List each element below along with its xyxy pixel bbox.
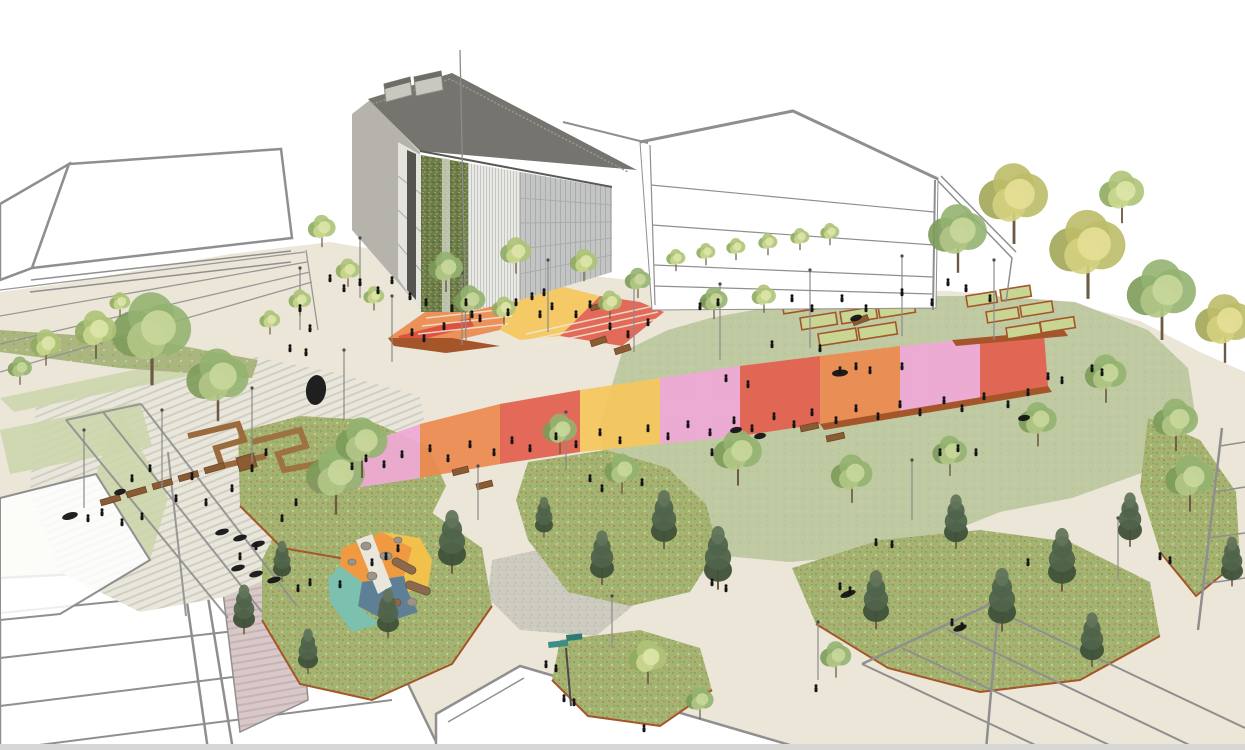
person: [943, 396, 946, 399]
person: [687, 420, 690, 423]
person: [299, 307, 302, 312]
person: [901, 362, 904, 365]
person: [751, 424, 754, 427]
boulder: [394, 537, 402, 543]
pine-tree-canopy: [1227, 536, 1238, 550]
person: [447, 457, 450, 462]
light-pole-head: [358, 236, 361, 239]
tower-stair-core: [407, 150, 416, 300]
person: [401, 453, 404, 458]
person: [899, 403, 902, 408]
person: [599, 428, 602, 431]
person: [771, 340, 774, 343]
person: [343, 284, 346, 287]
person: [309, 578, 312, 581]
person: [619, 439, 622, 444]
person: [793, 420, 796, 423]
person: [815, 684, 818, 687]
tree-canopy: [355, 429, 378, 452]
person: [101, 511, 104, 516]
light-pole-head: [816, 620, 819, 623]
person: [429, 444, 432, 447]
person: [841, 294, 844, 297]
pine-tree-canopy: [658, 490, 670, 507]
person: [965, 284, 968, 287]
tree-canopy: [441, 259, 456, 274]
person: [711, 581, 714, 586]
person: [359, 281, 362, 286]
person: [891, 543, 894, 548]
person: [359, 278, 362, 281]
person: [425, 298, 428, 301]
person: [529, 444, 532, 447]
person: [409, 295, 412, 300]
person: [589, 477, 592, 482]
person: [793, 423, 796, 428]
person: [423, 334, 426, 337]
tree-canopy: [607, 296, 618, 307]
person: [351, 462, 354, 465]
person: [589, 303, 592, 308]
person: [1027, 388, 1030, 391]
person: [601, 484, 604, 487]
tree-canopy: [17, 362, 28, 373]
person: [465, 298, 468, 301]
person: [377, 286, 380, 289]
person: [855, 362, 858, 365]
tree-canopy: [765, 237, 773, 245]
person: [733, 416, 736, 419]
person: [239, 555, 242, 560]
person: [875, 541, 878, 546]
person: [1091, 364, 1094, 367]
person: [983, 392, 986, 395]
person: [947, 278, 950, 281]
tree-canopy: [846, 464, 864, 482]
boulder: [361, 542, 371, 550]
person: [931, 298, 934, 301]
person: [877, 412, 880, 415]
person: [121, 518, 124, 521]
pine-tree-canopy: [1086, 612, 1098, 627]
person: [619, 436, 622, 439]
person: [309, 581, 312, 586]
person: [515, 298, 518, 301]
person: [539, 313, 542, 318]
person: [493, 451, 496, 456]
person: [281, 514, 284, 517]
light-pole-head: [82, 428, 85, 431]
person: [339, 583, 342, 588]
person: [575, 443, 578, 448]
person: [289, 347, 292, 352]
boulder: [407, 598, 417, 606]
tree-canopy: [703, 247, 711, 255]
person: [101, 508, 104, 511]
person: [975, 451, 978, 456]
person: [411, 331, 414, 336]
person: [507, 308, 510, 311]
person: [231, 484, 234, 487]
light-pole-head: [476, 464, 479, 467]
person: [555, 435, 558, 440]
person: [555, 664, 558, 667]
person: [1159, 555, 1162, 560]
person: [365, 454, 368, 457]
person: [627, 330, 630, 333]
pine-tree-canopy: [596, 530, 608, 545]
light-pole-head: [160, 408, 163, 411]
tree-canopy: [643, 649, 660, 666]
person: [385, 555, 388, 560]
person: [1047, 372, 1050, 375]
tree-canopy: [90, 320, 108, 338]
person: [131, 477, 134, 482]
person: [855, 365, 858, 370]
person: [1061, 376, 1064, 379]
person: [725, 377, 728, 382]
person: [725, 587, 728, 592]
person: [471, 310, 474, 313]
tree-canopy: [1183, 466, 1204, 487]
person: [647, 318, 650, 321]
tree-canopy: [1004, 179, 1034, 209]
person: [531, 292, 534, 295]
person: [943, 399, 946, 404]
person: [601, 487, 604, 492]
person: [643, 727, 646, 732]
person: [297, 587, 300, 592]
person: [791, 297, 794, 302]
person: [251, 464, 254, 467]
tree-canopy: [555, 421, 570, 436]
person: [747, 383, 750, 388]
person: [493, 448, 496, 451]
person: [869, 369, 872, 374]
person: [377, 289, 380, 294]
person: [839, 585, 842, 590]
person: [329, 277, 332, 282]
person: [687, 423, 690, 428]
person: [551, 305, 554, 310]
person: [507, 311, 510, 316]
light-pole-head: [342, 348, 345, 351]
tree-canopy: [42, 336, 56, 350]
tree-canopy: [950, 217, 976, 243]
person: [811, 408, 814, 411]
person: [717, 298, 720, 301]
person: [575, 313, 578, 318]
person: [573, 698, 576, 701]
person: [365, 457, 368, 462]
office-tower: [352, 71, 637, 312]
light-pole-head: [546, 258, 549, 261]
person: [747, 380, 750, 383]
person: [555, 667, 558, 672]
person: [641, 478, 644, 481]
person: [951, 618, 954, 621]
person: [667, 435, 670, 440]
tree-canopy: [673, 253, 681, 261]
person: [1101, 368, 1104, 371]
person: [819, 344, 822, 347]
person: [811, 307, 814, 312]
plaza-surface-patch: [820, 346, 900, 424]
person: [425, 301, 428, 306]
person: [411, 328, 414, 331]
person: [641, 481, 644, 486]
person: [869, 366, 872, 369]
tree-canopy: [1033, 411, 1050, 428]
tree-canopy: [512, 244, 526, 258]
person: [667, 432, 670, 435]
person: [149, 467, 152, 472]
person: [515, 301, 518, 306]
person: [951, 621, 954, 626]
tree-canopy: [267, 315, 276, 324]
pine-tree-canopy: [303, 629, 313, 642]
person: [383, 460, 386, 463]
person: [773, 412, 776, 415]
tree-canopy: [345, 264, 356, 275]
person: [175, 494, 178, 497]
pine-tree-canopy: [995, 568, 1008, 586]
person: [647, 424, 650, 427]
tree-canopy: [209, 363, 236, 390]
person: [447, 454, 450, 457]
person: [643, 724, 646, 727]
person: [1027, 558, 1030, 561]
pine-tree-canopy: [540, 497, 549, 509]
tree-canopy: [328, 459, 354, 485]
person: [1169, 556, 1172, 559]
person: [539, 310, 542, 313]
person: [811, 304, 814, 307]
person: [1047, 375, 1050, 380]
tree-canopy: [297, 294, 307, 304]
person: [877, 415, 880, 420]
tree-canopy: [1170, 409, 1190, 429]
person: [725, 584, 728, 587]
person: [901, 365, 904, 370]
person: [281, 517, 284, 522]
person: [545, 660, 548, 663]
person: [1159, 552, 1162, 555]
person: [545, 663, 548, 668]
person: [451, 307, 454, 312]
person: [231, 487, 234, 492]
person: [205, 498, 208, 501]
person: [891, 540, 894, 543]
person: [609, 325, 612, 330]
person: [975, 448, 978, 451]
person: [699, 305, 702, 310]
person: [771, 343, 774, 348]
person: [423, 337, 426, 342]
person: [865, 304, 868, 307]
person: [901, 288, 904, 291]
person: [371, 558, 374, 561]
tree-canopy: [580, 255, 592, 267]
person: [255, 545, 258, 550]
light-pole-head: [808, 268, 811, 271]
bottom-strip: [0, 744, 1245, 750]
person: [255, 542, 258, 545]
person: [511, 436, 514, 439]
person: [865, 307, 868, 312]
light-pole-head: [564, 410, 567, 413]
person: [429, 447, 432, 452]
person: [709, 431, 712, 436]
person: [295, 501, 298, 506]
person: [711, 451, 714, 456]
person: [835, 419, 838, 424]
pine-tree-canopy: [870, 570, 882, 587]
person: [239, 552, 242, 555]
person: [839, 369, 842, 374]
light-pole-head: [298, 266, 301, 269]
person: [149, 464, 152, 467]
rendering-canvas: [0, 0, 1245, 750]
person: [1007, 403, 1010, 408]
pine-tree-canopy: [445, 510, 458, 528]
person: [351, 465, 354, 470]
person: [939, 448, 942, 451]
person: [965, 287, 968, 292]
person: [397, 547, 400, 552]
person: [717, 301, 720, 306]
person: [961, 625, 964, 630]
person: [191, 472, 194, 475]
person: [87, 514, 90, 517]
person: [939, 451, 942, 456]
person: [343, 287, 346, 292]
person: [725, 374, 728, 377]
tree-canopy: [696, 693, 708, 705]
tree-canopy: [1077, 227, 1110, 260]
person: [961, 407, 964, 412]
person: [299, 304, 302, 307]
person: [465, 301, 468, 306]
person: [919, 408, 922, 411]
person: [589, 300, 592, 303]
pine-tree-canopy: [383, 588, 394, 602]
person: [563, 697, 566, 702]
person: [409, 292, 412, 295]
person: [647, 427, 650, 432]
tree-canopy: [733, 242, 741, 250]
tree-canopy: [117, 297, 126, 306]
boulder: [348, 559, 356, 565]
pine-tree-canopy: [711, 526, 724, 544]
person: [983, 395, 986, 400]
tree-canopy: [1217, 307, 1243, 333]
person: [711, 578, 714, 581]
person: [849, 589, 852, 594]
tree-canopy: [141, 310, 176, 345]
person: [1101, 371, 1104, 376]
person: [339, 580, 342, 583]
person: [841, 297, 844, 302]
masterplan-rendering: [0, 0, 1245, 750]
person: [391, 276, 394, 279]
person: [609, 322, 612, 325]
person: [87, 517, 90, 522]
person: [191, 475, 194, 480]
pine-tree-canopy: [278, 541, 287, 553]
person: [309, 324, 312, 327]
tree-canopy: [617, 461, 632, 476]
person: [931, 301, 934, 306]
person: [295, 498, 298, 501]
tree-canopy: [634, 274, 645, 285]
light-pole-head: [910, 458, 913, 461]
tree-canopy: [827, 227, 835, 235]
person: [531, 295, 534, 300]
person: [647, 321, 650, 326]
person: [855, 404, 858, 407]
person: [469, 443, 472, 448]
person: [265, 451, 268, 456]
person: [443, 325, 446, 330]
boulder: [367, 572, 377, 580]
person: [711, 448, 714, 451]
person: [733, 419, 736, 424]
person: [957, 447, 960, 452]
light-pole-head: [250, 386, 253, 389]
person: [1091, 367, 1094, 372]
person: [575, 440, 578, 443]
pine-tree-canopy: [950, 494, 962, 509]
person: [901, 291, 904, 296]
person: [1169, 559, 1172, 564]
person: [265, 448, 268, 451]
person: [599, 431, 602, 436]
person: [849, 586, 852, 589]
person: [141, 515, 144, 520]
person: [699, 302, 702, 305]
light-pole-head: [992, 258, 995, 261]
person: [543, 291, 546, 296]
person: [751, 427, 754, 432]
person: [989, 294, 992, 297]
person: [329, 274, 332, 277]
person: [1027, 391, 1030, 396]
person: [383, 463, 386, 468]
person: [1007, 400, 1010, 403]
person: [957, 444, 960, 447]
tree-canopy: [501, 302, 512, 313]
person: [175, 497, 178, 502]
person: [839, 582, 842, 585]
person: [947, 281, 950, 286]
tree-canopy: [1152, 275, 1182, 305]
person: [401, 450, 404, 453]
person: [961, 404, 964, 407]
person: [709, 428, 712, 431]
person: [479, 317, 482, 322]
person: [1061, 379, 1064, 384]
person: [141, 512, 144, 515]
person: [385, 552, 388, 555]
person: [543, 288, 546, 291]
person: [551, 302, 554, 305]
person: [305, 351, 308, 356]
person: [251, 467, 254, 472]
person: [451, 304, 454, 307]
person: [471, 313, 474, 318]
person: [469, 440, 472, 443]
